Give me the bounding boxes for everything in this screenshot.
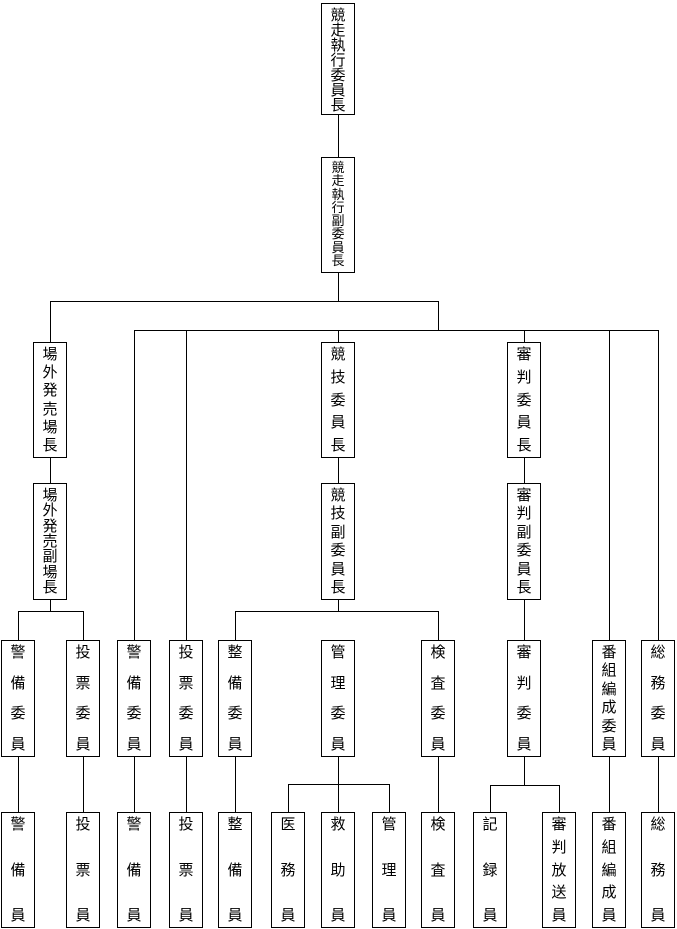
connector xyxy=(50,458,51,483)
node-referee-broadcast-staff: 審判放送員 xyxy=(542,812,576,928)
connector xyxy=(18,611,19,640)
connector xyxy=(83,611,84,640)
node-general-affairs-committee: 総務委員 xyxy=(641,640,675,757)
node-guard-staff: 警備員 xyxy=(117,812,151,928)
connector xyxy=(658,757,659,812)
connector xyxy=(50,301,439,302)
node-guard-staff-offtrack: 警備員 xyxy=(1,812,35,928)
connector xyxy=(559,785,560,812)
connector xyxy=(524,458,525,483)
node-vice-chairman: 競走執行副委員長 xyxy=(321,157,355,273)
node-inspection-staff: 検査員 xyxy=(421,812,455,928)
node-offtrack-sales-manager: 場外発売場長 xyxy=(33,342,67,458)
node-race-committee-deputy-chief: 競技副委員長 xyxy=(321,483,355,600)
node-referee-committee: 審判委員 xyxy=(507,640,541,757)
connector xyxy=(438,757,439,812)
connector xyxy=(338,458,339,483)
node-chairman: 競走執行委員長 xyxy=(321,3,355,115)
connector xyxy=(186,757,187,812)
connector xyxy=(134,330,659,331)
node-program-committee: 番組編成委員 xyxy=(592,640,626,757)
connector xyxy=(609,330,610,640)
connector xyxy=(18,611,84,612)
connector xyxy=(389,784,390,812)
connector xyxy=(83,757,84,812)
connector xyxy=(134,757,135,812)
connector xyxy=(338,600,339,611)
connector xyxy=(658,330,659,640)
connector xyxy=(338,784,339,812)
connector xyxy=(288,784,390,785)
connector xyxy=(438,611,439,640)
connector xyxy=(524,600,525,640)
connector xyxy=(338,115,339,157)
connector xyxy=(235,757,236,812)
connector xyxy=(524,330,525,342)
node-guard-committee: 警備委員 xyxy=(117,640,151,757)
node-maintenance-staff: 整備員 xyxy=(218,812,252,928)
node-inspection-committee: 検査委員 xyxy=(421,640,455,757)
node-general-affairs-staff: 総務員 xyxy=(641,812,675,928)
node-guard-committee-offtrack: 警備委員 xyxy=(1,640,35,757)
node-voting-committee: 投票委員 xyxy=(169,640,203,757)
node-medical-staff: 医務員 xyxy=(271,812,305,928)
connector xyxy=(609,757,610,812)
node-voting-staff-offtrack: 投票員 xyxy=(66,812,100,928)
connector xyxy=(338,273,339,301)
connector xyxy=(490,785,491,812)
connector xyxy=(338,330,339,342)
node-management-committee: 管理委員 xyxy=(321,640,355,757)
node-referee-committee-deputy-chief: 審判副委員長 xyxy=(507,483,541,600)
connector xyxy=(235,611,236,640)
connector xyxy=(524,757,525,785)
connector xyxy=(438,301,439,330)
connector xyxy=(490,785,560,786)
node-offtrack-sales-deputy-manager: 場外発売副場長 xyxy=(33,483,67,600)
node-voting-staff: 投票員 xyxy=(169,812,203,928)
node-management-staff: 管理員 xyxy=(372,812,406,928)
node-record-staff: 記録員 xyxy=(473,812,507,928)
connector xyxy=(50,301,51,342)
connector xyxy=(134,330,135,640)
connector xyxy=(235,611,439,612)
node-program-staff: 番組編成員 xyxy=(592,812,626,928)
node-referee-committee-chief: 審判委員長 xyxy=(507,342,541,458)
connector xyxy=(288,784,289,812)
node-rescue-staff: 救助員 xyxy=(321,812,355,928)
connector xyxy=(18,757,19,812)
node-maintenance-committee: 整備委員 xyxy=(218,640,252,757)
org-chart: 競走執行委員長 競走執行副委員長 場外発売場長 競技委員長 審判委員長 場外発売… xyxy=(0,0,677,929)
connector xyxy=(50,600,51,611)
connector xyxy=(186,330,187,640)
node-voting-committee-offtrack: 投票委員 xyxy=(66,640,100,757)
node-race-committee-chief: 競技委員長 xyxy=(321,342,355,458)
connector xyxy=(338,757,339,784)
